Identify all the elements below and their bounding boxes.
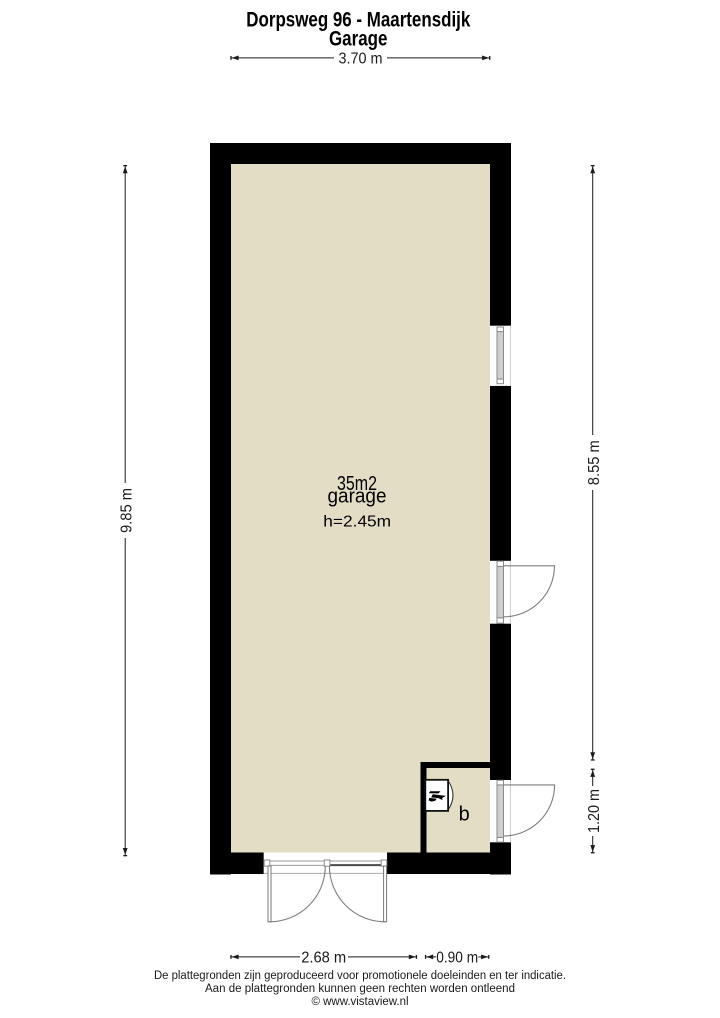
- svg-text:2.68 m: 2.68 m: [301, 950, 346, 967]
- svg-text:3.70 m: 3.70 m: [339, 51, 383, 68]
- svg-text:De plattegronden zijn geproduc: De plattegronden zijn geproduceerd voor …: [154, 970, 566, 982]
- svg-text:8.55 m: 8.55 m: [586, 440, 603, 485]
- svg-text:Aan de plattegronden kunnen ge: Aan de plattegronden kunnen geen rechten…: [205, 983, 515, 995]
- svg-text:Garage: Garage: [329, 28, 387, 51]
- svg-text:0.90 m: 0.90 m: [436, 950, 478, 967]
- svg-text:garage: garage: [328, 486, 387, 508]
- svg-text:b: b: [459, 803, 470, 825]
- svg-text:© www.vistaview.nl: © www.vistaview.nl: [312, 996, 409, 1008]
- svg-text:1.20 m: 1.20 m: [586, 789, 603, 833]
- svg-text:h=2.45m: h=2.45m: [323, 514, 391, 531]
- svg-text:9.85 m: 9.85 m: [119, 488, 136, 533]
